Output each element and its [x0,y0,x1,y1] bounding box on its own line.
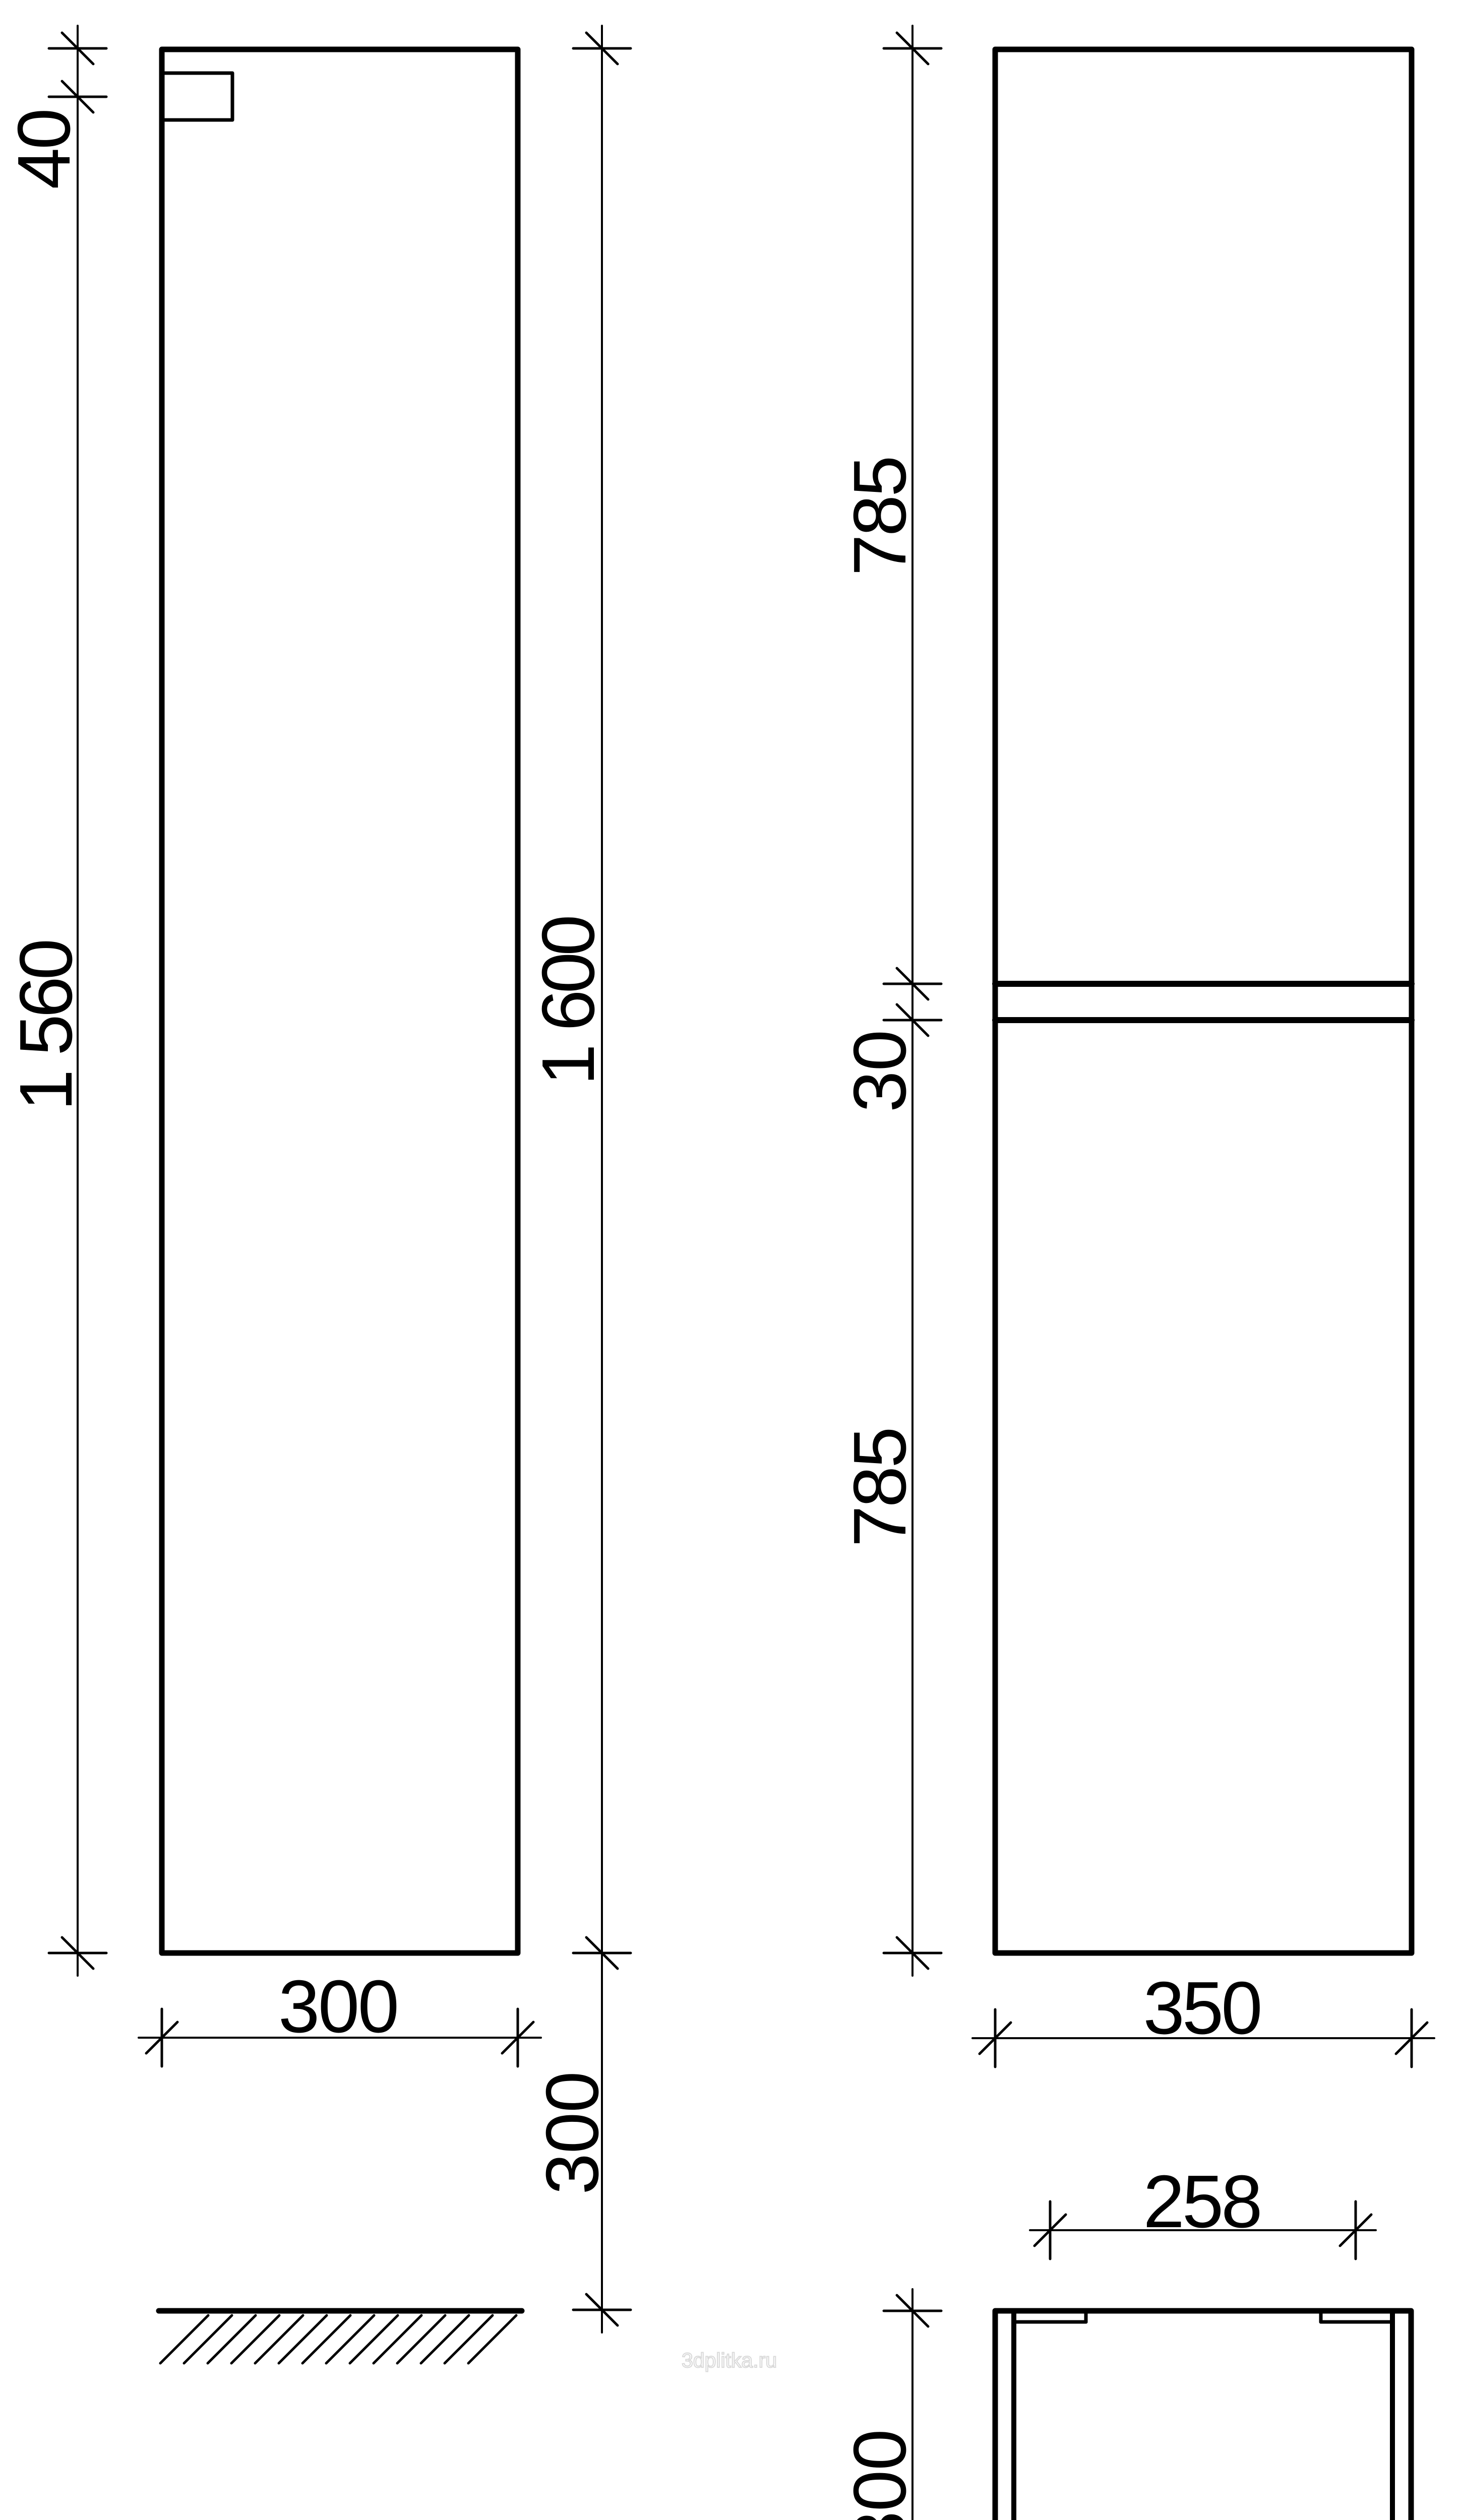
svg-text:258: 258 [1143,2160,1263,2243]
svg-text:785: 785 [838,1427,922,1547]
svg-text:1 600: 1 600 [527,915,610,1086]
svg-text:1 560: 1 560 [5,938,88,1111]
svg-text:3dplitka.ru: 3dplitka.ru [682,2349,777,2372]
svg-text:40: 40 [3,108,86,190]
svg-text:350: 350 [1143,1967,1263,2050]
svg-text:300: 300 [278,1965,399,2048]
svg-text:300: 300 [531,2071,614,2195]
svg-text:300: 300 [838,2429,922,2520]
svg-text:30: 30 [838,1030,922,1112]
svg-text:785: 785 [838,456,922,576]
